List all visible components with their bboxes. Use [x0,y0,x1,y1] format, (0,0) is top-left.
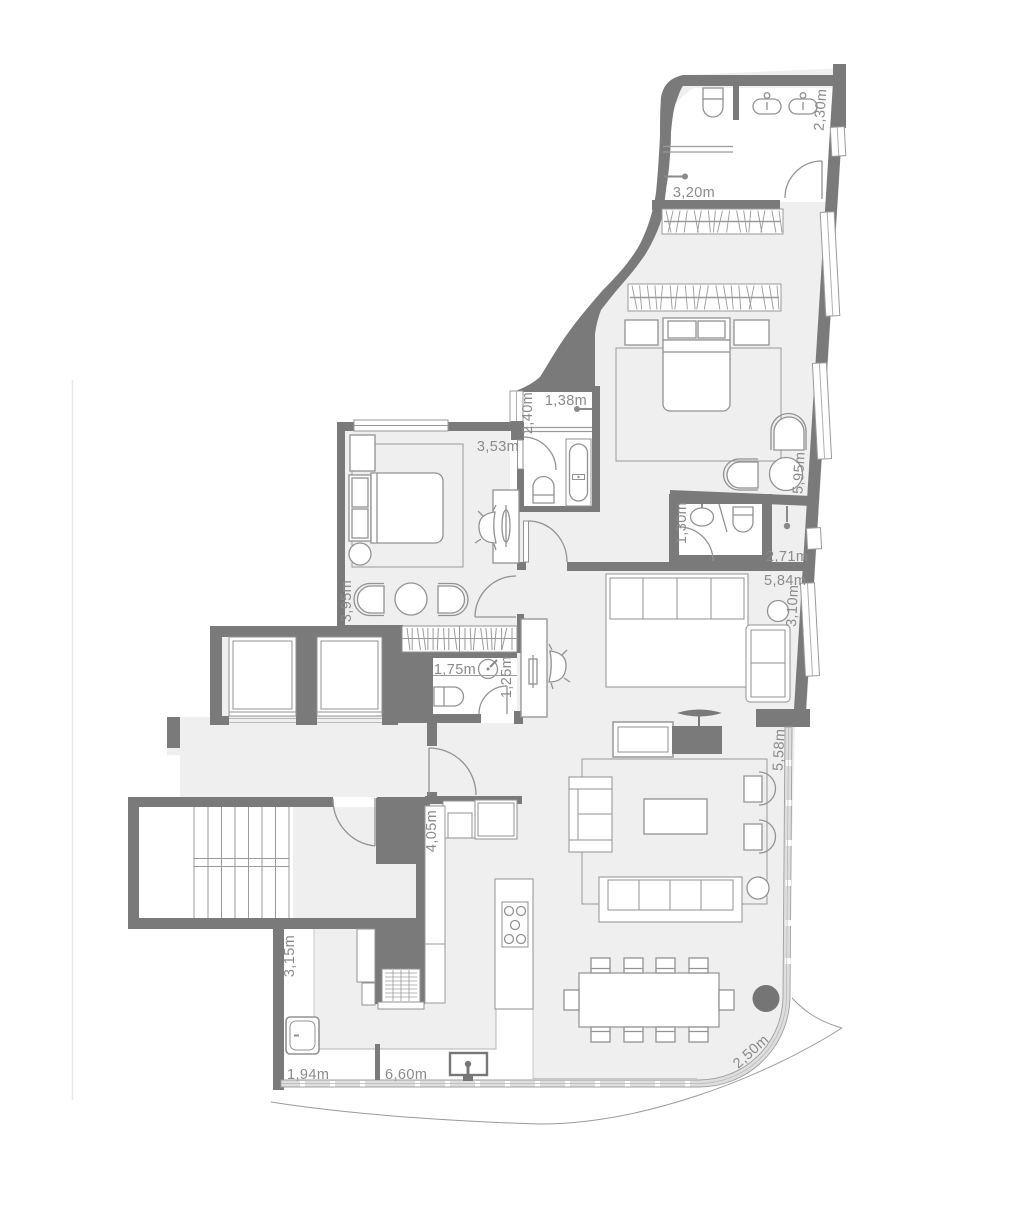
svg-text:6,60m: 6,60m [385,1067,427,1083]
svg-text:1,25m: 1,25m [499,656,515,698]
svg-text:1,38m: 1,38m [545,393,587,409]
svg-text:3,10m: 3,10m [784,584,802,627]
svg-text:5,95m: 5,95m [790,451,808,494]
svg-text:4,05m: 4,05m [424,810,440,852]
svg-text:3,95m: 3,95m [339,580,355,622]
svg-text:1,94m: 1,94m [287,1067,329,1083]
svg-text:1,30m: 1,30m [674,502,690,544]
svg-text:3,15m: 3,15m [282,935,298,977]
svg-text:2,30m: 2,30m [812,88,831,131]
svg-text:2,40m: 2,40m [520,392,536,434]
svg-text:3,20m: 3,20m [673,185,715,201]
svg-text:2,71m: 2,71m [766,549,808,565]
svg-text:5,58m: 5,58m [770,728,788,771]
svg-text:3,53m: 3,53m [477,439,519,455]
svg-text:1,75m: 1,75m [434,662,476,678]
